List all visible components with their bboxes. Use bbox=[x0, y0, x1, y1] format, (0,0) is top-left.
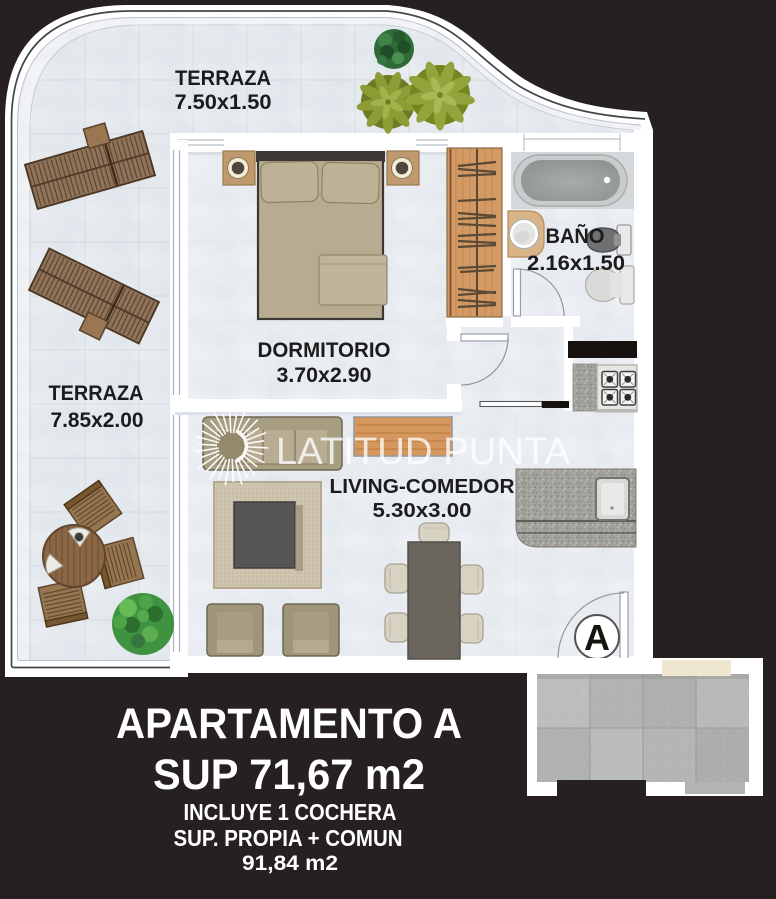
svg-text:TERRAZA: TERRAZA bbox=[175, 67, 271, 90]
svg-text:LATITUD PUNTA: LATITUD PUNTA bbox=[276, 431, 571, 473]
svg-text:3.70x2.90: 3.70x2.90 bbox=[277, 364, 372, 387]
svg-text:TERRAZA: TERRAZA bbox=[49, 382, 144, 405]
svg-text:A: A bbox=[584, 617, 610, 658]
svg-text:INCLUYE 1 COCHERA: INCLUYE 1 COCHERA bbox=[184, 799, 397, 825]
svg-text:LIVING-COMEDOR: LIVING-COMEDOR bbox=[330, 476, 516, 498]
svg-text:91,84 m2: 91,84 m2 bbox=[242, 852, 338, 875]
svg-text:2.16x1.50: 2.16x1.50 bbox=[527, 252, 625, 275]
svg-text:DORMITORIO: DORMITORIO bbox=[258, 339, 391, 362]
svg-text:BAÑO: BAÑO bbox=[546, 225, 605, 248]
svg-text:SUP 71,67 m2: SUP 71,67 m2 bbox=[153, 751, 425, 799]
svg-text:SUP. PROPIA + COMUN: SUP. PROPIA + COMUN bbox=[174, 825, 403, 851]
svg-text:7.50x1.50: 7.50x1.50 bbox=[175, 91, 272, 114]
svg-text:7.85x2.00: 7.85x2.00 bbox=[51, 409, 144, 432]
svg-text:5.30x3.00: 5.30x3.00 bbox=[373, 500, 472, 522]
svg-text:APARTAMENTO A: APARTAMENTO A bbox=[116, 700, 462, 748]
